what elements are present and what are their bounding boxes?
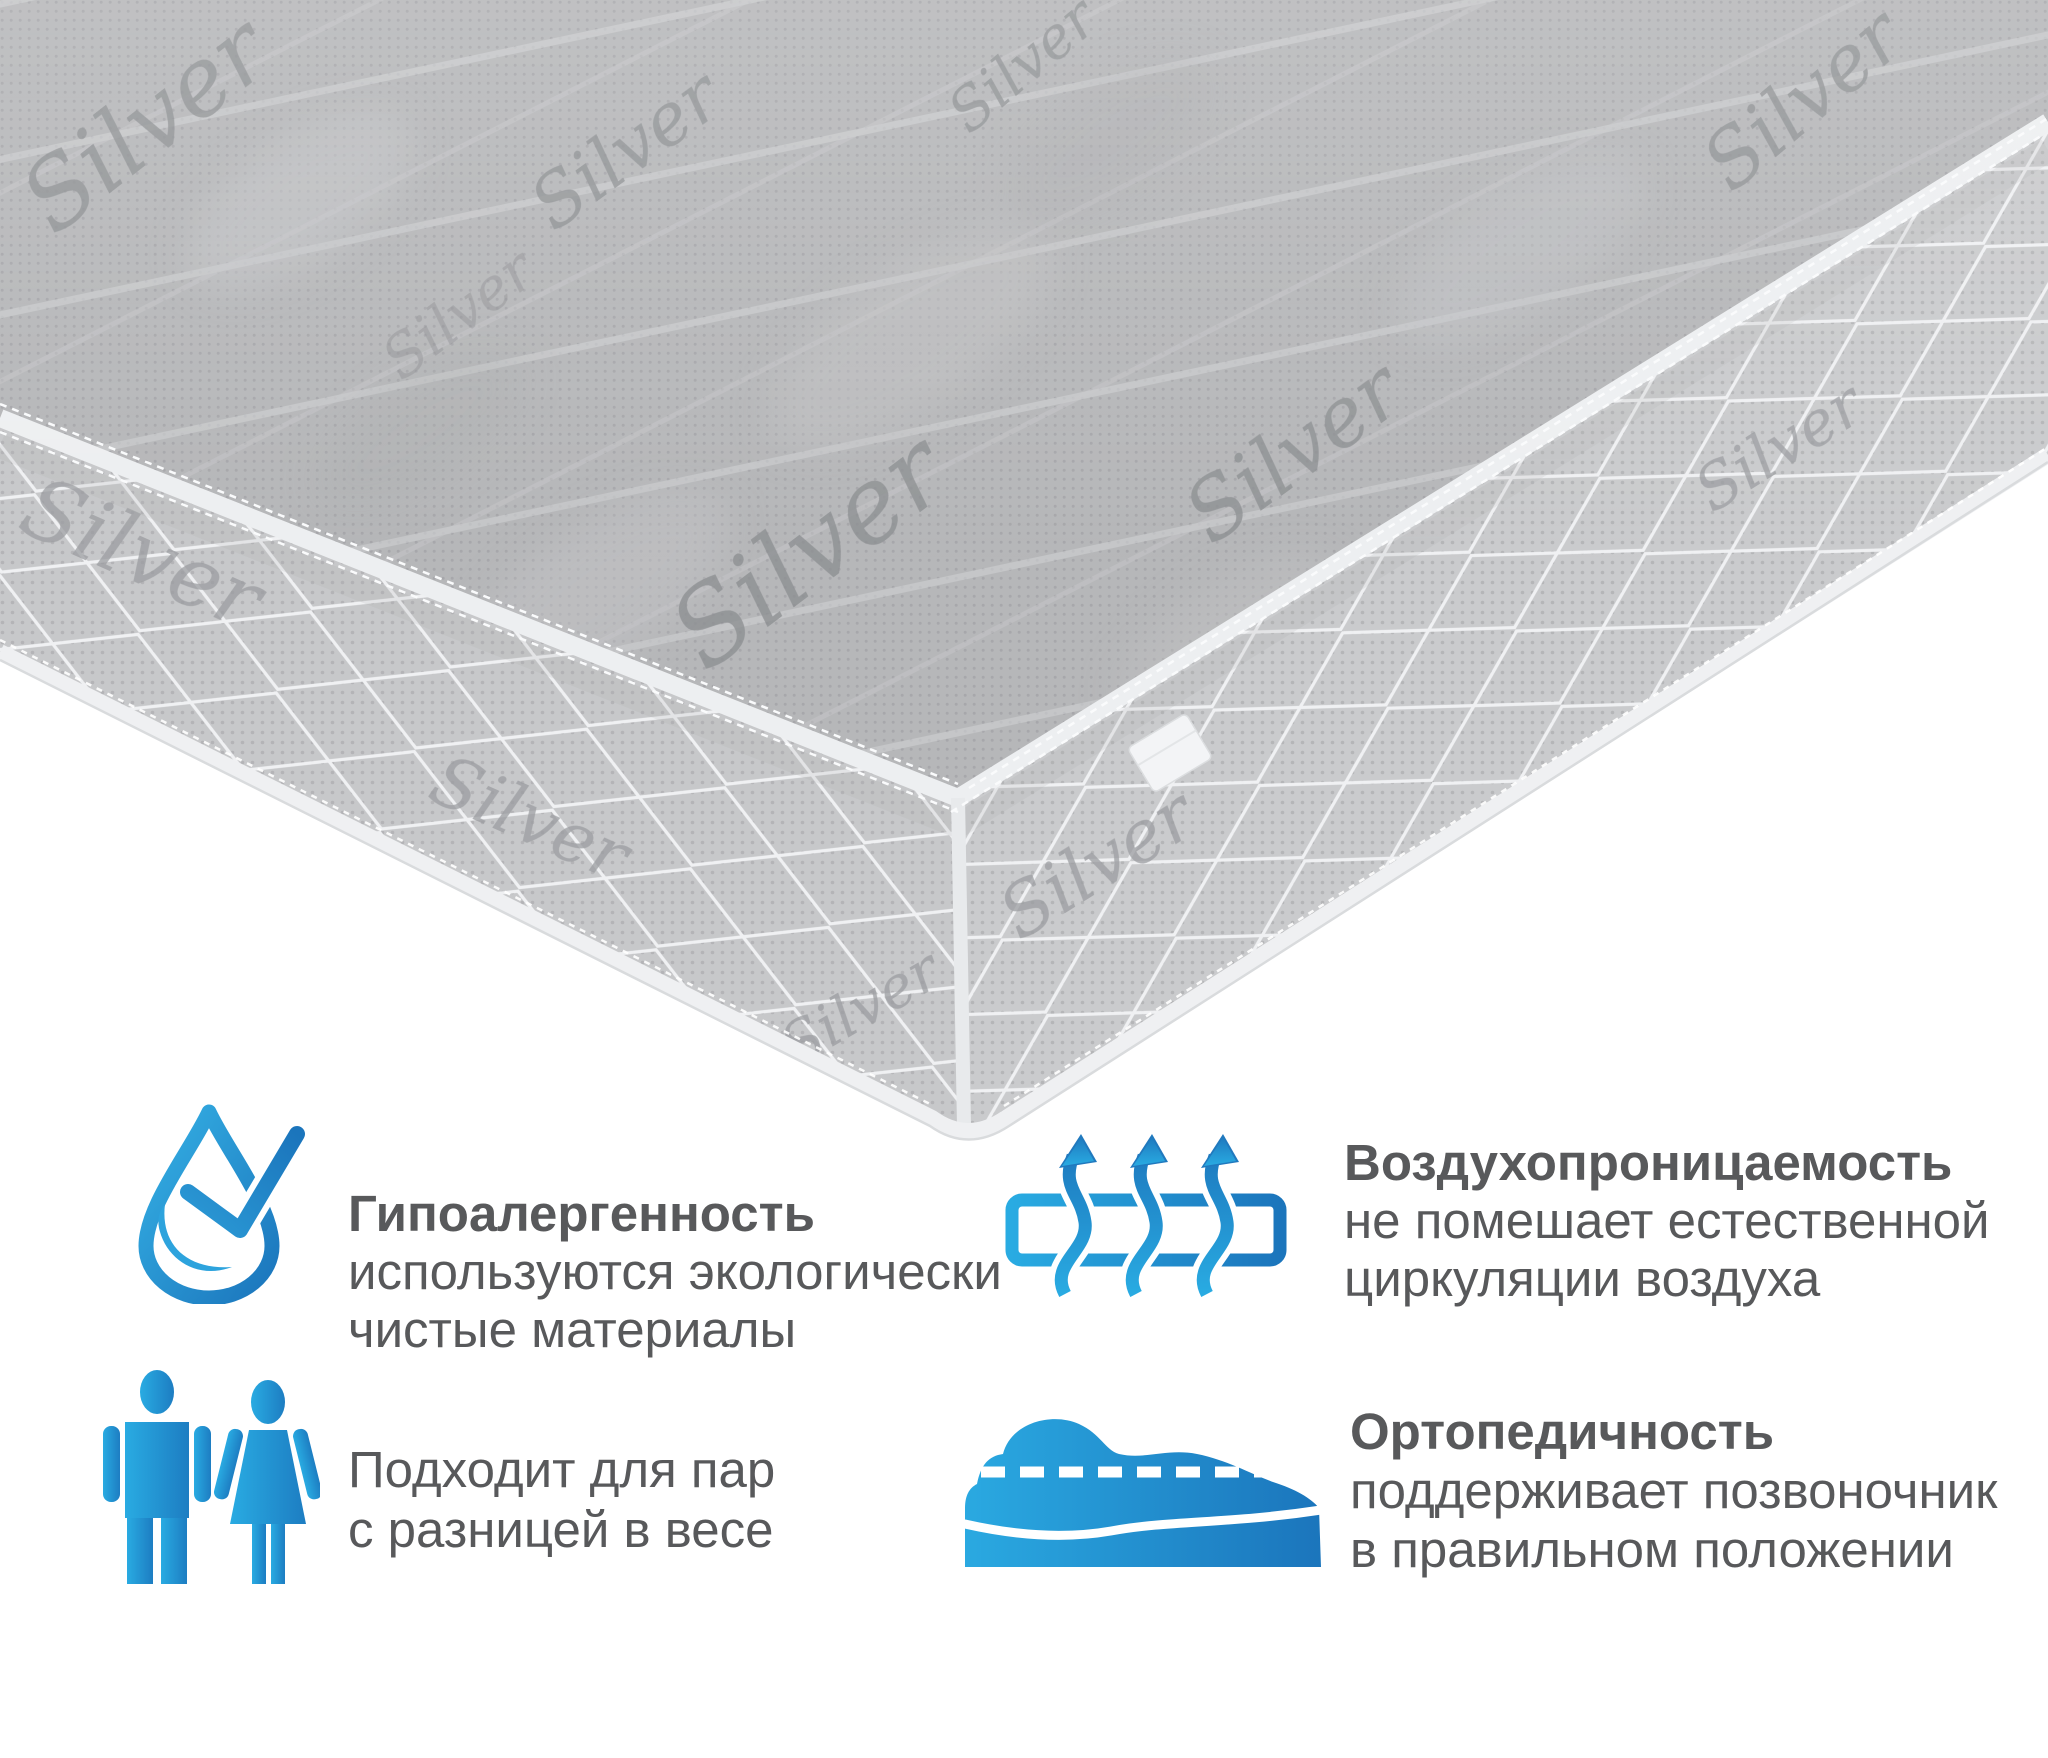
feature-couples: Подходит для пар с разницей в весе — [348, 1440, 775, 1560]
man-woman-couple-icon — [100, 1366, 320, 1590]
feature-title: Гипоалергенность — [348, 1185, 1002, 1243]
feature-line: используются экологически — [348, 1243, 1002, 1301]
mattress-photo: Silver Silver Silver Silver Silver Silve… — [0, 0, 2048, 1155]
product-infographic: Silver Silver Silver Silver Silver Silve… — [0, 0, 2048, 1758]
feature-title: Воздухопроницаемость — [1344, 1134, 1990, 1192]
feature-line: циркуляции воздуха — [1344, 1250, 1990, 1308]
water-drop-check-icon — [138, 1104, 306, 1304]
feature-line: чистые материалы — [348, 1301, 1002, 1359]
feature-orthopedic: Ортопедичность поддерживает позвоночник … — [1350, 1402, 1997, 1579]
man-figure — [103, 1370, 211, 1584]
feature-line: в правильном положении — [1350, 1520, 1997, 1579]
feature-title: Ортопедичность — [1350, 1402, 1997, 1461]
feature-line: Подходит для пар — [348, 1440, 775, 1500]
feature-hypoallergenic: Гипоалергенность используются экологичес… — [348, 1185, 1002, 1359]
feature-line: с разницей в весе — [348, 1500, 775, 1560]
feature-line: не помешает естественной — [1344, 1192, 1990, 1250]
sleeping-person-on-mattress-icon — [965, 1412, 1333, 1567]
feature-line: поддерживает позвоночник — [1350, 1461, 1997, 1520]
airflow-arrows-icon — [1005, 1130, 1290, 1298]
woman-figure — [212, 1380, 320, 1584]
feature-breathability: Воздухопроницаемость не помешает естеств… — [1344, 1134, 1990, 1308]
